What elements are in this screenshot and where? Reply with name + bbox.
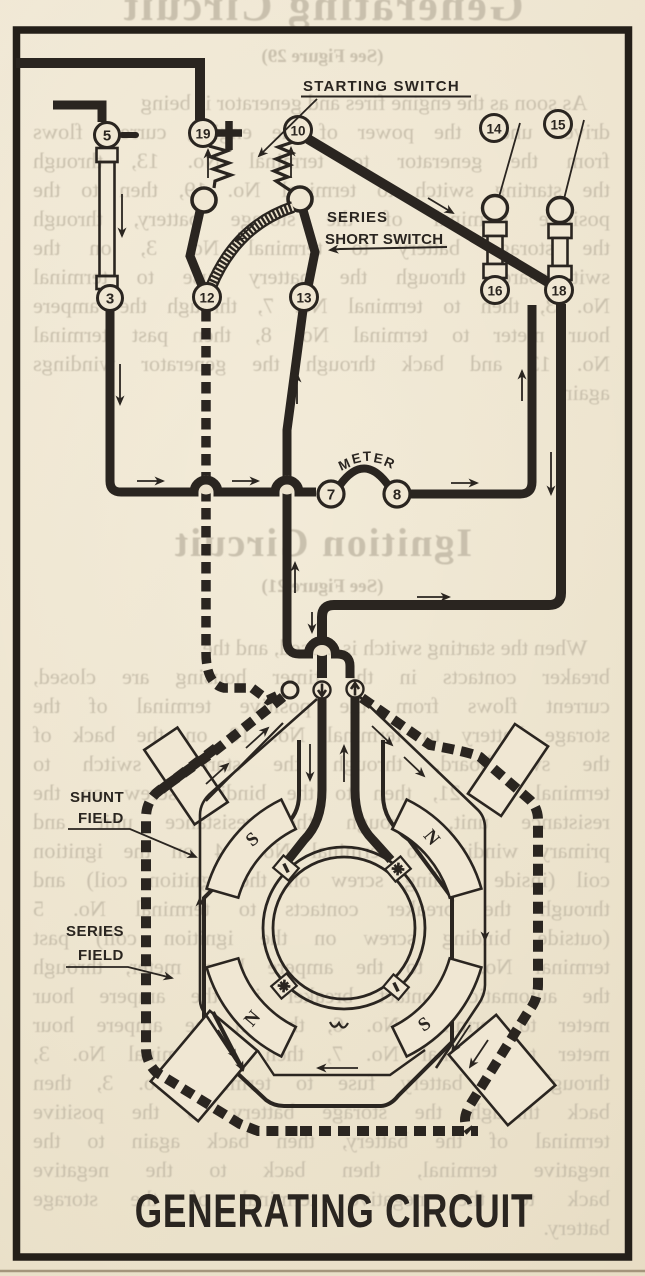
svg-text:SERIES: SERIES [66, 923, 124, 940]
svg-text:16: 16 [487, 284, 503, 299]
svg-text:19: 19 [195, 127, 210, 142]
svg-text:FIELD: FIELD [78, 810, 124, 827]
svg-text:14: 14 [486, 122, 502, 137]
svg-text:T: T [363, 449, 373, 464]
svg-text:18: 18 [551, 284, 567, 299]
svg-text:STARTING SWITCH: STARTING SWITCH [303, 78, 460, 95]
svg-text:8: 8 [393, 487, 401, 504]
svg-text:R: R [382, 454, 397, 472]
svg-text:15: 15 [550, 118, 566, 133]
svg-text:5: 5 [103, 128, 111, 145]
svg-text:SHORT SWITCH: SHORT SWITCH [325, 231, 443, 248]
svg-text:7: 7 [327, 487, 335, 504]
svg-text:12: 12 [199, 291, 214, 306]
svg-text:SHUNT: SHUNT [70, 789, 124, 806]
svg-text:3: 3 [106, 291, 114, 308]
svg-text:SERIES: SERIES [327, 209, 388, 226]
svg-text:FIELD: FIELD [78, 947, 124, 964]
svg-text:GENERATING CIRCUIT: GENERATING CIRCUIT [135, 1184, 534, 1237]
svg-text:E: E [350, 450, 362, 467]
svg-text:10: 10 [290, 124, 305, 139]
svg-text:13: 13 [296, 291, 312, 306]
